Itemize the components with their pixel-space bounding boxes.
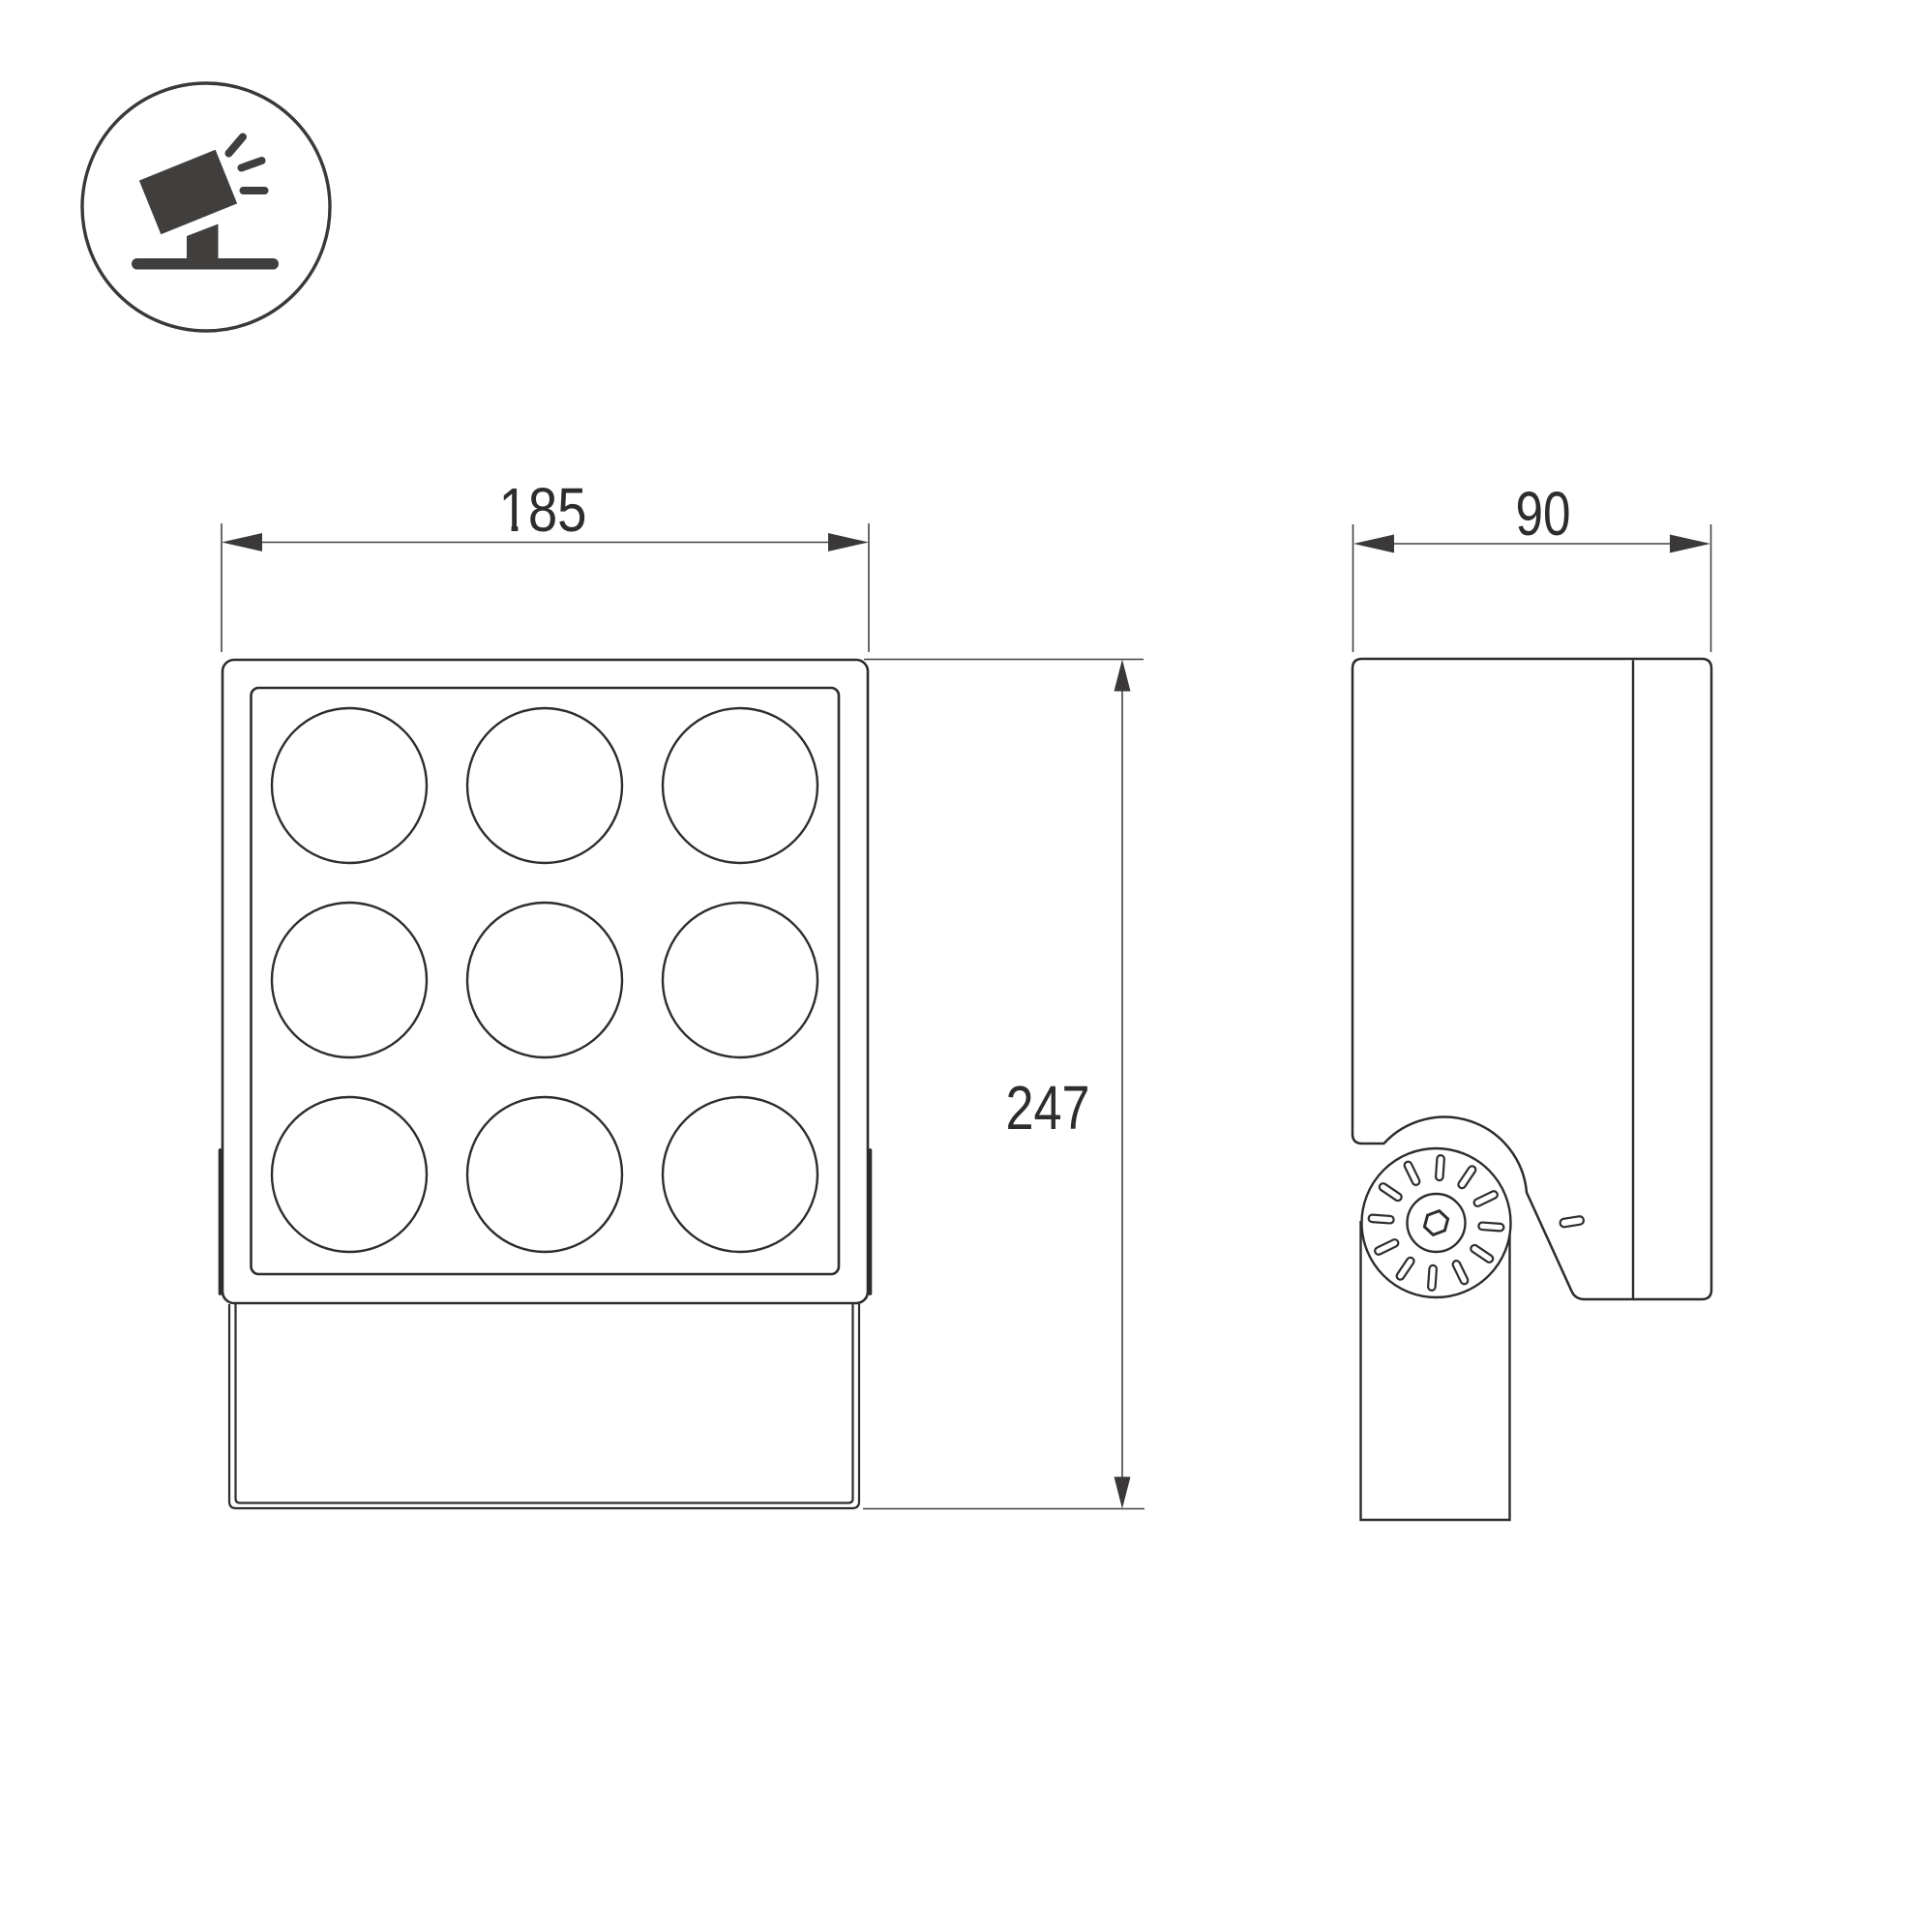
svg-text:90: 90 [1516, 479, 1571, 549]
svg-text:185: 185 [499, 475, 587, 545]
svg-text:247: 247 [1006, 1073, 1090, 1143]
